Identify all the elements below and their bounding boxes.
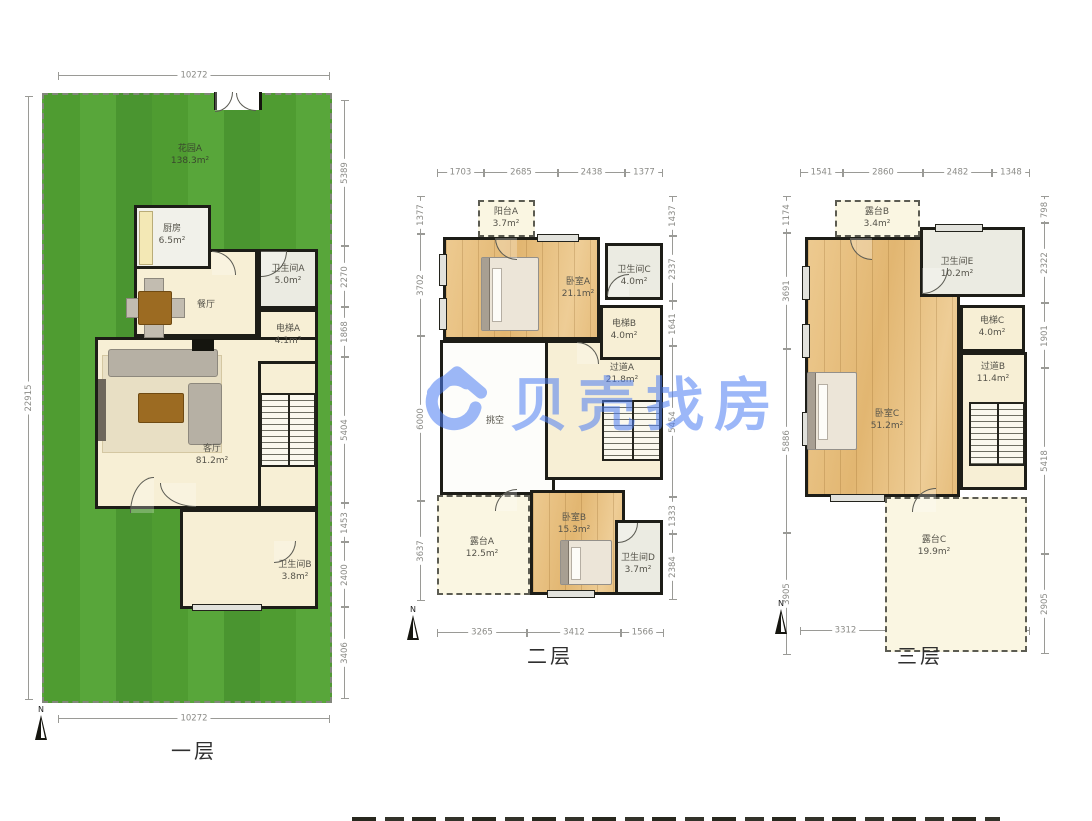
room-name: 卫生间E [941, 256, 974, 268]
dim-label: 2860 [869, 168, 897, 178]
dim-top-2: 2482 [923, 172, 992, 173]
dining-table [138, 291, 172, 325]
dim-left-0: 1377 [420, 196, 421, 234]
room-label-elevB: 电梯B4.0m² [611, 318, 638, 342]
dim-label: 3702 [416, 271, 426, 299]
room-name: 过道B [977, 361, 1009, 373]
dim-label: 5389 [340, 159, 350, 187]
window [537, 234, 579, 242]
dim-top-3: 1348 [992, 172, 1030, 173]
room-name: 卫生间A [271, 263, 304, 275]
room-label-terrA: 露台A12.5m² [466, 536, 498, 560]
room-label-bathB: 卫生间B3.8m² [278, 559, 311, 583]
beike-logo-icon [420, 363, 494, 437]
dim-label: 10272 [177, 714, 210, 724]
dim-label: 2270 [340, 263, 350, 291]
bed [807, 372, 857, 450]
room-name: 露台A [466, 536, 498, 548]
room-area: 11.4m² [977, 373, 1009, 385]
dim-label: 5404 [340, 416, 350, 444]
room-label-living: 客厅81.2m² [196, 443, 228, 467]
dim-label: 2322 [1040, 249, 1050, 277]
floor-plan-3: 卧室C51.2m²过道B11.4m²露台B3.4m²卫生间E10.2m²电梯C4… [800, 196, 1030, 655]
dim-right-3: 5418 [1044, 368, 1045, 554]
room-area: 4.0m² [979, 327, 1006, 339]
room-area: 15.3m² [558, 524, 590, 536]
dim-right-1: 2270 [344, 246, 345, 307]
dim-label: 1174 [782, 201, 792, 229]
room-name: 阳台A [493, 206, 520, 218]
dim-right-4: 2905 [1044, 554, 1045, 654]
dim-right-3: 5404 [344, 357, 345, 503]
room-area: 10.2m² [941, 268, 974, 280]
window [802, 324, 810, 358]
dim-label: 2482 [944, 168, 972, 178]
room-name: 卫生间B [278, 559, 311, 571]
room-area: 5.0m² [271, 275, 304, 287]
sofa [108, 349, 218, 377]
dim-label: 1377 [416, 201, 426, 229]
room-area: 4.1m² [275, 335, 302, 347]
compass-n-label: N [400, 606, 426, 614]
dim-left-1: 3702 [420, 234, 421, 336]
room-name: 餐厅 [197, 299, 215, 311]
dim-right-0: 798 [1044, 196, 1045, 223]
room-area: 3.4m² [864, 218, 891, 230]
room-label-kitchen: 厨房6.5m² [159, 223, 186, 247]
cropped-text-strip [352, 817, 1000, 821]
dim-label: 3637 [416, 537, 426, 565]
compass-n-label: N [768, 600, 794, 608]
dim-label: 1868 [340, 318, 350, 346]
room-area: 21.1m² [562, 288, 594, 300]
dim-label: 1703 [447, 168, 475, 178]
window [802, 266, 810, 300]
room-name: 花园A [171, 143, 209, 155]
room-label-dining: 餐厅 [197, 299, 215, 311]
room-label-elevC: 电梯C4.0m² [979, 315, 1006, 339]
dim-left-1: 3691 [786, 233, 787, 349]
room-label-garden: 花园A138.3m² [171, 143, 209, 167]
dim-right-0: 1437 [672, 196, 673, 236]
room-label-bedA: 卧室A21.1m² [562, 276, 594, 300]
stairs [969, 402, 1025, 466]
dim-label: 2400 [340, 561, 350, 589]
compass-needle-icon [407, 615, 419, 640]
dim-label: 3691 [782, 277, 792, 305]
room-label-bathE: 卫生间E10.2m² [941, 256, 974, 280]
window [192, 604, 262, 611]
fireplace [192, 339, 214, 351]
tv-cabinet [98, 379, 106, 441]
room-area: 19.9m² [918, 546, 950, 558]
dim-label: 3312 [832, 626, 860, 636]
dim-top-1: 2685 [484, 172, 558, 173]
room-label-hallB: 过道B11.4m² [977, 361, 1009, 385]
coffee-table [138, 393, 184, 423]
dim-left-0: 1174 [786, 196, 787, 233]
floor-title-3: 三层 [897, 640, 943, 669]
dim-label: 1333 [668, 502, 678, 530]
dim-top-0: 1703 [437, 172, 484, 173]
dim-label: 2685 [507, 168, 535, 178]
room-name: 卧室A [562, 276, 594, 288]
room-label-bathA: 卫生间A5.0m² [271, 263, 304, 287]
chair [171, 298, 185, 318]
stairs [260, 393, 316, 467]
room-label-bathC: 卫生间C4.0m² [617, 264, 650, 288]
dim-left-3: 3905 [786, 533, 787, 655]
dim-right-2: 1868 [344, 307, 345, 357]
room-area: 138.3m² [171, 155, 209, 167]
dim-label: 1437 [668, 202, 678, 230]
room-name: 卧室B [558, 512, 590, 524]
dim-top-2: 2438 [558, 172, 625, 173]
room-name: 厨房 [159, 223, 186, 235]
dim-right-5: 2400 [344, 542, 345, 607]
window [935, 224, 983, 232]
room-name: 卫生间D [621, 552, 655, 564]
dim-label: 2438 [578, 168, 606, 178]
room-label-terrB: 露台B3.4m² [864, 206, 891, 230]
dim-right-4: 1333 [672, 497, 673, 534]
beike-watermark: 贝壳找房 [420, 358, 782, 442]
room-label-terrC: 露台C19.9m² [918, 534, 950, 558]
dim-bottom-0: 3265 [437, 632, 527, 633]
room-area: 4.0m² [617, 276, 650, 288]
dim-top-1: 2860 [843, 172, 923, 173]
dim-label: 5886 [782, 427, 792, 455]
floor-title-2: 二层 [527, 640, 573, 669]
kitchen-counter [139, 211, 153, 265]
compass-n-label: N [28, 706, 54, 714]
dim-right-0: 5389 [344, 100, 345, 246]
dim-bottom-1: 3412 [527, 632, 621, 633]
room-area: 12.5m² [466, 548, 498, 560]
room-label-elevA: 电梯A4.1m² [275, 323, 302, 347]
dim-right-6: 3406 [344, 607, 345, 699]
dim-label: 1641 [668, 310, 678, 338]
dim-top-3: 1377 [625, 172, 663, 173]
dim-label: 1901 [1040, 322, 1050, 350]
room-label-bedC: 卧室C51.2m² [871, 408, 903, 432]
dim-label: 2337 [668, 255, 678, 283]
watermark-text: 贝壳找房 [510, 358, 782, 442]
room-area: 3.8m² [278, 571, 311, 583]
dim-right-2: 1901 [1044, 303, 1045, 368]
dim-label: 10272 [177, 71, 210, 81]
dim-label: 1566 [629, 628, 657, 638]
dim-bottom-0: 3312 [800, 630, 891, 631]
window [439, 254, 447, 286]
dim-label: 2384 [668, 553, 678, 581]
window [830, 494, 885, 502]
dim-label: 798 [1040, 198, 1050, 220]
room-area: 6.5m² [159, 235, 186, 247]
room-area: 81.2m² [196, 455, 228, 467]
dim-label: 22915 [24, 381, 34, 414]
dim-label: 2905 [1040, 590, 1050, 618]
dim-label: 1377 [630, 168, 658, 178]
window [547, 590, 595, 598]
dim-right-2: 1641 [672, 301, 673, 346]
dim-left-3: 3637 [420, 501, 421, 601]
dim-right-5: 2384 [672, 534, 673, 600]
dim-top-0: 1541 [800, 172, 843, 173]
dim-label: 3412 [560, 628, 588, 638]
dim-right-4: 1453 [344, 503, 345, 542]
room-terrC [885, 497, 1027, 652]
dim-bottom-2: 1566 [621, 632, 664, 633]
room-name: 卧室C [871, 408, 903, 420]
room-label-balcA: 阳台A3.7m² [493, 206, 520, 230]
dim-bottom-0: 10272 [58, 718, 330, 719]
room-name: 电梯A [275, 323, 302, 335]
chair [144, 324, 164, 338]
dim-right-1: 2322 [1044, 223, 1045, 303]
chair [144, 278, 164, 292]
dim-label: 1453 [340, 509, 350, 537]
dim-label: 1541 [808, 168, 836, 178]
room-name: 卫生间C [617, 264, 650, 276]
dim-label: 5418 [1040, 447, 1050, 475]
room-label-bathD: 卫生间D3.7m² [621, 552, 655, 576]
room-name: 电梯B [611, 318, 638, 330]
room-name: 客厅 [196, 443, 228, 455]
room-name: 露台C [918, 534, 950, 546]
dim-label: 3406 [340, 639, 350, 667]
room-area: 51.2m² [871, 420, 903, 432]
dim-label: 1348 [997, 168, 1025, 178]
room-name: 电梯C [979, 315, 1006, 327]
room-name: 露台B [864, 206, 891, 218]
compass-2: N [400, 606, 426, 640]
bed [560, 540, 612, 585]
floor-plan-1: 花园A138.3m²餐厅厨房6.5m²卫生间A5.0m²电梯A4.1m²客厅81… [42, 93, 332, 703]
dim-right-1: 2337 [672, 236, 673, 301]
room-area: 4.0m² [611, 330, 638, 342]
room-label-bedB: 卧室B15.3m² [558, 512, 590, 536]
compass-needle-icon [775, 609, 787, 634]
floorplan-canvas: 花园A138.3m²餐厅厨房6.5m²卫生间A5.0m²电梯A4.1m²客厅81… [0, 0, 1092, 821]
compass-1: N [28, 706, 54, 740]
room-area: 3.7m² [493, 218, 520, 230]
bed [481, 257, 539, 331]
room-area: 3.7m² [621, 564, 655, 576]
armchair [188, 383, 222, 445]
compass-needle-icon [35, 715, 47, 740]
dim-top-0: 10272 [58, 75, 330, 76]
compass-3: N [768, 600, 794, 634]
floor-title-1: 一层 [171, 735, 217, 764]
window [439, 298, 447, 330]
dim-left-0: 22915 [28, 96, 29, 700]
dim-left-2: 5886 [786, 349, 787, 533]
dim-label: 3265 [468, 628, 496, 638]
